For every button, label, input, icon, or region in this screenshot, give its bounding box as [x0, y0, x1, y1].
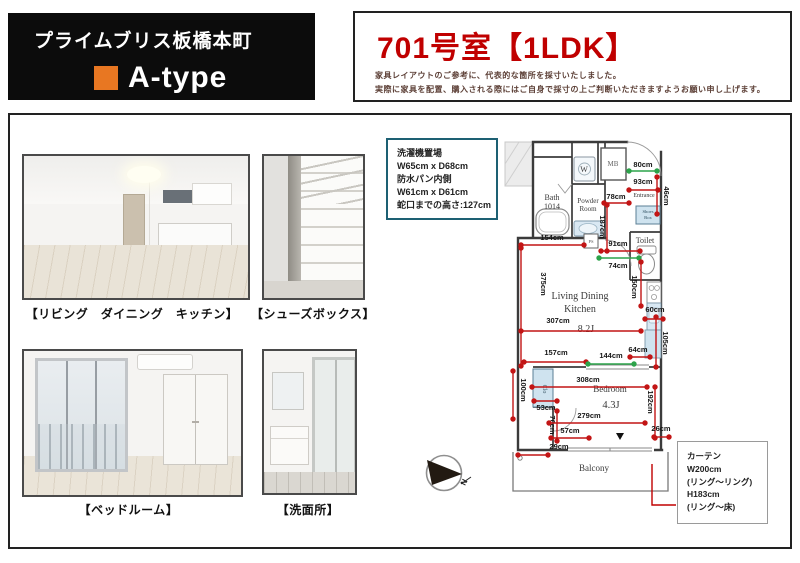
room-label: MB — [608, 160, 619, 168]
room-label: Powder — [577, 197, 599, 205]
measurement: 93cm — [626, 177, 660, 193]
measurement: 279cm — [546, 411, 647, 426]
vanity-mirror — [272, 372, 304, 410]
room-label: W — [580, 165, 588, 174]
room-label: 4.3J — [602, 400, 619, 411]
room-label: Bath — [544, 193, 559, 202]
svg-text:187cm: 187cm — [598, 215, 607, 239]
room-title: 701号室【1LDK】 — [377, 23, 790, 67]
svg-text:308cm: 308cm — [576, 375, 600, 384]
curtain-note-line: (リング〜リング) — [687, 476, 767, 489]
washer-note-line: W65cm x D68cm — [397, 160, 496, 173]
measurement: 26cm — [651, 424, 671, 440]
a-type-square — [94, 66, 118, 90]
svg-text:64cm: 64cm — [628, 345, 648, 354]
room-label: Room — [579, 205, 597, 213]
washer-note-line: 洗濯機置場 — [397, 147, 496, 160]
photo-living-dining-kitchen — [22, 154, 250, 300]
caption-ldk: 【リビング ダイニング キッチン】 — [18, 305, 246, 322]
floorplan: Bath1014WPowderRoomMBEntranceShoesBoxToi… — [500, 135, 700, 507]
svg-text:150cm: 150cm — [630, 275, 639, 299]
washer-note-box: 洗濯機置場 W65cm x D68cm 防水パン内側 W61cm x D61cm… — [386, 138, 498, 220]
header: プライムブリス板橋本町 A-type — [8, 13, 315, 100]
svg-text:91cm: 91cm — [608, 239, 628, 248]
svg-text:29cm: 29cm — [549, 442, 569, 451]
measurement: 150cm — [630, 259, 644, 308]
svg-text:144cm: 144cm — [599, 351, 623, 360]
svg-text:78cm: 78cm — [606, 192, 626, 201]
svg-text:80cm: 80cm — [633, 160, 653, 169]
vanity-cabinet — [270, 426, 308, 465]
curtain-note-box: カーテン W200cm (リング〜リング) H183cm (リング〜床) — [677, 441, 768, 524]
compass-icon: N — [414, 444, 476, 500]
balcony-railing — [38, 424, 125, 469]
curtain-note-line: カーテン — [687, 450, 767, 463]
photo-washroom — [262, 349, 357, 495]
svg-text:57cm: 57cm — [560, 426, 580, 435]
svg-text:192cm: 192cm — [646, 390, 655, 414]
page: プライムブリス板橋本町 A-type 701号室【1LDK】 家具レイアウトのご… — [0, 0, 800, 563]
closet-doors — [163, 374, 228, 465]
a-type-label: A-type — [128, 61, 227, 95]
room-label: Box — [644, 215, 652, 220]
room-label: 1014 — [544, 202, 560, 211]
measurement: 80cm — [626, 160, 659, 174]
svg-text:26cm: 26cm — [651, 424, 671, 433]
balcony-window — [35, 358, 128, 472]
building-name: プライムブリス板橋本町 — [34, 26, 315, 53]
entry-marker — [616, 433, 624, 440]
washer-note-line: 防水パン内側 — [397, 173, 496, 186]
room-label: Clo — [541, 385, 547, 394]
kitchen-cabinet — [192, 183, 232, 205]
title-note-2: 実際に家具を配置、購入される際にはご自身で採寸の上ご判断いただきますようお願い申… — [375, 84, 790, 95]
caption-washroom: 【洗面所】 — [255, 501, 361, 518]
curtain-leader-line — [652, 464, 676, 505]
measurement: 60cm — [642, 305, 665, 322]
room-label: Entrance — [633, 193, 655, 199]
svg-text:307cm: 307cm — [546, 316, 570, 325]
sliding-door — [312, 357, 357, 491]
photo-bedroom — [22, 349, 243, 497]
room-label: Shoes — [643, 209, 654, 214]
ceiling-light — [127, 166, 161, 183]
range-hood — [163, 190, 192, 203]
room-label: Living Dining — [552, 291, 609, 302]
washer-note-line: 蛇口までの高さ:127cm — [397, 199, 496, 212]
title-note-1: 家具レイアウトのご参考に、代表的な箇所を採寸いたしました。 — [375, 70, 790, 81]
svg-text:105cm: 105cm — [661, 331, 670, 355]
room-label: 8.2J — [578, 324, 595, 335]
type-row: A-type — [94, 61, 315, 95]
title-box: 701号室【1LDK】 家具レイアウトのご参考に、代表的な箇所を採寸いたしました… — [353, 11, 792, 102]
curtain-note-line: W200cm — [687, 463, 767, 476]
svg-text:157cm: 157cm — [544, 348, 568, 357]
svg-text:93cm: 93cm — [633, 177, 653, 186]
caption-bedroom: 【ベッドルーム】 — [18, 501, 239, 518]
caption-shoes-box: 【シューズボックス】 — [250, 305, 376, 322]
svg-text:53cm: 53cm — [536, 403, 556, 412]
room-label: Toilet — [636, 236, 655, 245]
measurement: 46cm — [654, 174, 671, 216]
curtain-note-line: (リング〜床) — [687, 501, 767, 514]
measurement: 157cm — [521, 348, 588, 365]
photo1-door — [123, 194, 145, 253]
room-label: Bedroom — [593, 384, 627, 394]
svg-text:279cm: 279cm — [577, 411, 601, 420]
room-label: PS — [588, 239, 594, 244]
bathtub — [536, 209, 569, 235]
curtain-note-line: H183cm — [687, 488, 767, 501]
measurement: 74cm — [596, 255, 641, 270]
photo1-floor — [24, 245, 248, 298]
room-label: Kitchen — [564, 304, 596, 315]
svg-text:154cm: 154cm — [540, 233, 564, 242]
svg-text:375cm: 375cm — [539, 272, 548, 296]
svg-text:60cm: 60cm — [645, 305, 665, 314]
photo-shoes-box — [262, 154, 365, 300]
svg-text:100cm: 100cm — [519, 378, 528, 402]
washer-note-line: W61cm x D61cm — [397, 186, 496, 199]
svg-text:46cm: 46cm — [662, 186, 671, 206]
air-conditioner — [137, 354, 193, 370]
svg-text:74cm: 74cm — [608, 261, 628, 270]
room-label: Balcony — [579, 463, 609, 473]
